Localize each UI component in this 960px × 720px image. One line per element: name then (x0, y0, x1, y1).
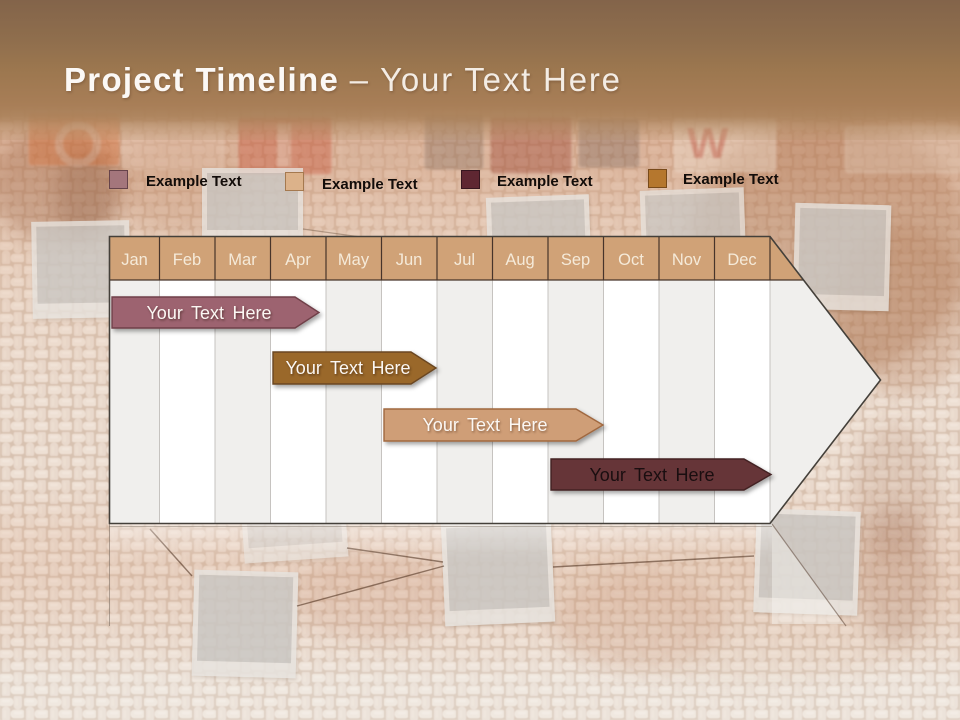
svg-text:Nov: Nov (672, 251, 702, 269)
svg-text:Mar: Mar (228, 251, 257, 269)
svg-text:Feb: Feb (173, 251, 201, 269)
svg-text:Apr: Apr (285, 251, 311, 269)
svg-text:Jan: Jan (121, 251, 148, 269)
svg-text:May: May (338, 251, 370, 269)
svg-text:Your Text Here: Your Text Here (285, 358, 410, 378)
svg-text:Oct: Oct (618, 251, 644, 269)
svg-text:Sep: Sep (561, 251, 590, 269)
svg-text:Jun: Jun (396, 251, 423, 269)
svg-text:Your Text Here: Your Text Here (146, 303, 271, 323)
svg-text:Jul: Jul (454, 251, 475, 269)
svg-text:Your Text Here: Your Text Here (422, 415, 547, 435)
svg-text:Dec: Dec (727, 251, 756, 269)
svg-text:Aug: Aug (505, 251, 534, 269)
svg-text:Your Text Here: Your Text Here (589, 465, 714, 485)
